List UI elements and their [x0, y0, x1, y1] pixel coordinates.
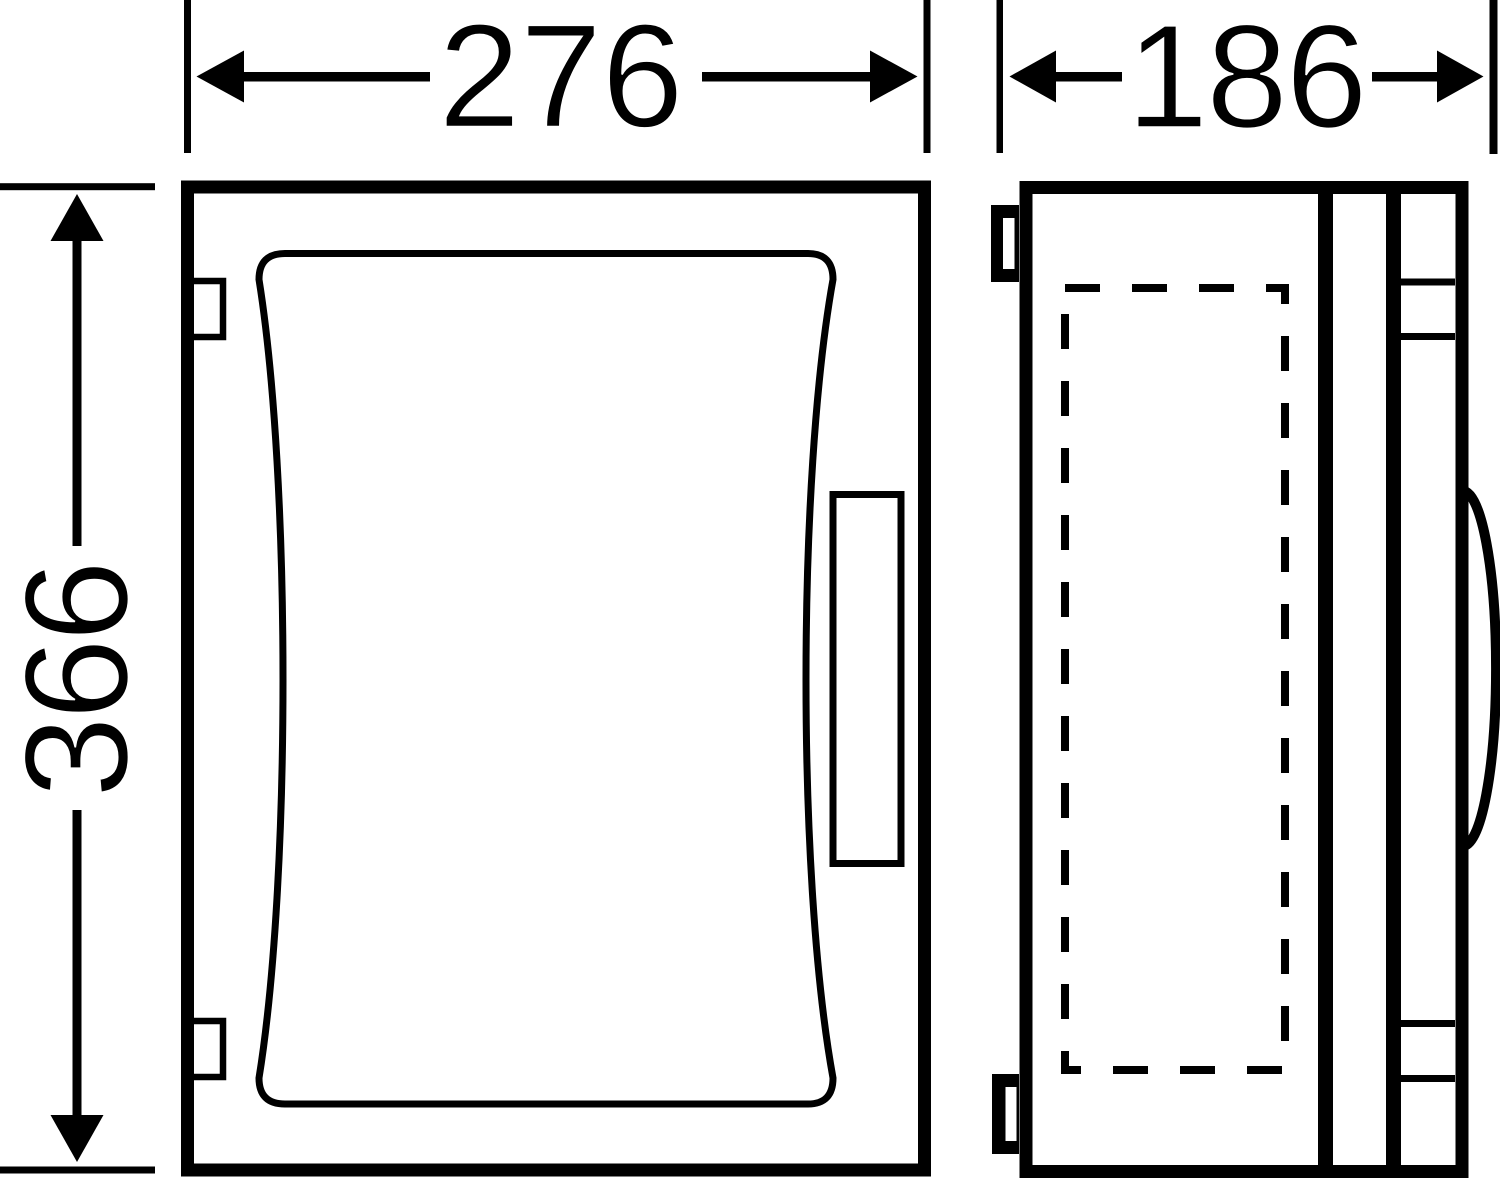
svg-text:276: 276 [439, 0, 684, 159]
svg-text:186: 186 [1127, 0, 1368, 159]
svg-text:366: 366 [0, 560, 159, 798]
